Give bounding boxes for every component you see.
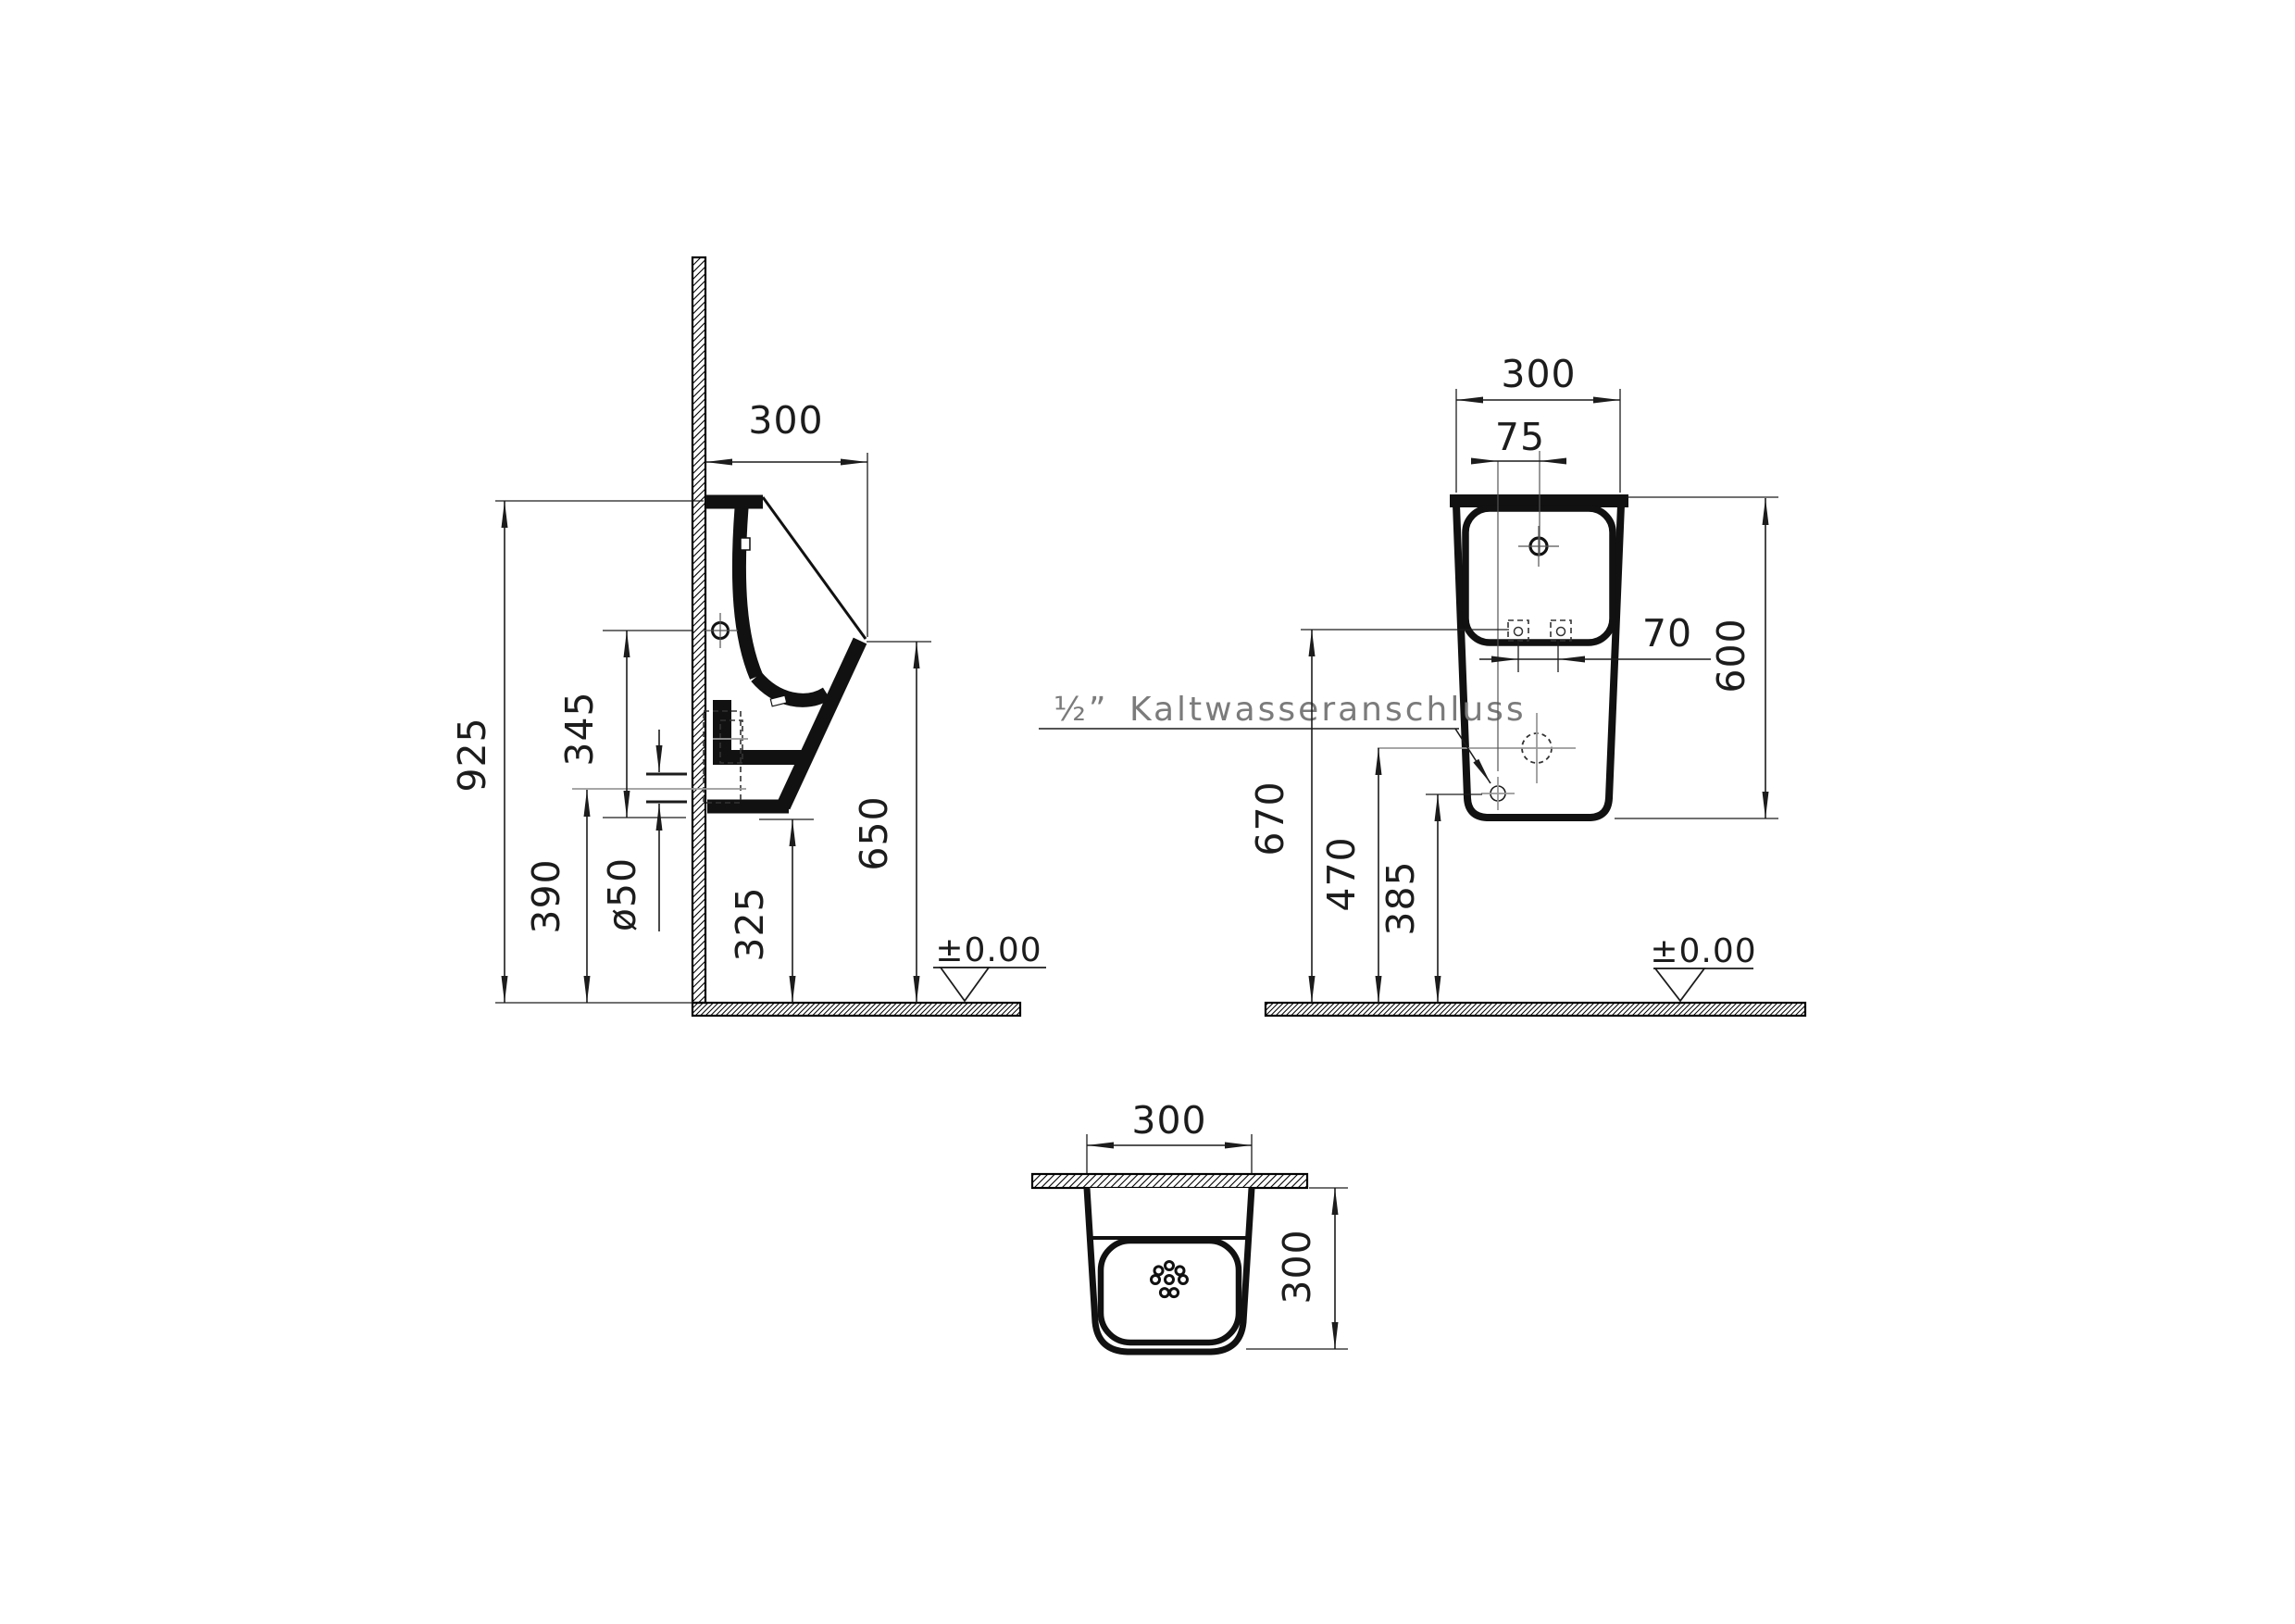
dim-label: 75	[1495, 415, 1545, 459]
dim-label: ø50	[600, 857, 644, 931]
urinal-side-profile	[705, 497, 866, 806]
floor-level-label: ±0.00	[1650, 932, 1756, 970]
dim-label: 470	[1319, 836, 1364, 911]
dim-side-outlet-diameter: ø50	[600, 730, 659, 931]
dim-label: 670	[1248, 781, 1292, 856]
connection-leader	[1455, 729, 1491, 783]
floor-level-marker-front: ±0.00	[1650, 932, 1756, 1001]
dim-label: 325	[728, 886, 772, 961]
dim-label: 300	[748, 398, 823, 443]
dim-label: 650	[852, 795, 896, 870]
dim-side-total-height: 925	[450, 501, 505, 1003]
floor-level-label: ±0.00	[935, 931, 1041, 969]
dim-front-connection-height: 385	[1378, 794, 1482, 1003]
dim-front-bolt-height: 670	[1248, 630, 1312, 1003]
technical-drawing-sheet: 300 925 390 345 ø50 325 650	[0, 0, 2295, 1624]
floor-section-front	[1266, 1003, 1805, 1016]
floor-level-marker-side: ±0.00	[933, 931, 1046, 1001]
dim-front-inlet-height: 470	[1319, 748, 1378, 1003]
dim-label: 390	[524, 858, 568, 933]
dim-side-bottom-height: 325	[728, 819, 814, 1003]
dim-label: 600	[1709, 618, 1753, 693]
dim-top-width: 300	[1087, 1098, 1252, 1173]
front-view: ½” Kaltwasseranschluss 300 75 70 6	[1039, 352, 1805, 1016]
fixing-holes-front	[1508, 620, 1571, 641]
dim-label: 300	[1131, 1098, 1206, 1143]
urinal-installation-drawing: 300 925 390 345 ø50 325 650	[0, 0, 2295, 1624]
dim-label: 925	[450, 717, 494, 792]
top-view: 300 300	[1032, 1098, 1348, 1352]
dim-side-spout-height: 650	[852, 642, 931, 1003]
dim-label: 345	[557, 691, 602, 766]
dim-side-depth: 300	[705, 398, 867, 637]
dim-top-depth: 300	[1246, 1188, 1348, 1349]
side-view: 300 925 390 345 ø50 325 650	[450, 257, 1046, 1016]
connection-size-label: ½”	[1054, 691, 1109, 729]
floor-section	[692, 1003, 1020, 1016]
spreader-hole-side	[741, 538, 750, 550]
connection-label: Kaltwasseranschluss	[1129, 691, 1527, 729]
spreader-hole-front	[1518, 526, 1559, 567]
dim-front-body-height: 600	[1615, 497, 1778, 818]
dim-label: 300	[1501, 352, 1576, 396]
dim-front-inlet-offset: 75	[1472, 415, 1566, 461]
dim-side-outlet-height: 390	[524, 790, 587, 1003]
dim-label: 385	[1378, 860, 1423, 935]
dim-label: 70	[1642, 611, 1692, 656]
wall-section-top	[1032, 1174, 1307, 1188]
fixing-hole-side	[703, 613, 738, 648]
dim-label: 300	[1275, 1229, 1319, 1304]
cold-water-connection-point	[1481, 777, 1515, 810]
